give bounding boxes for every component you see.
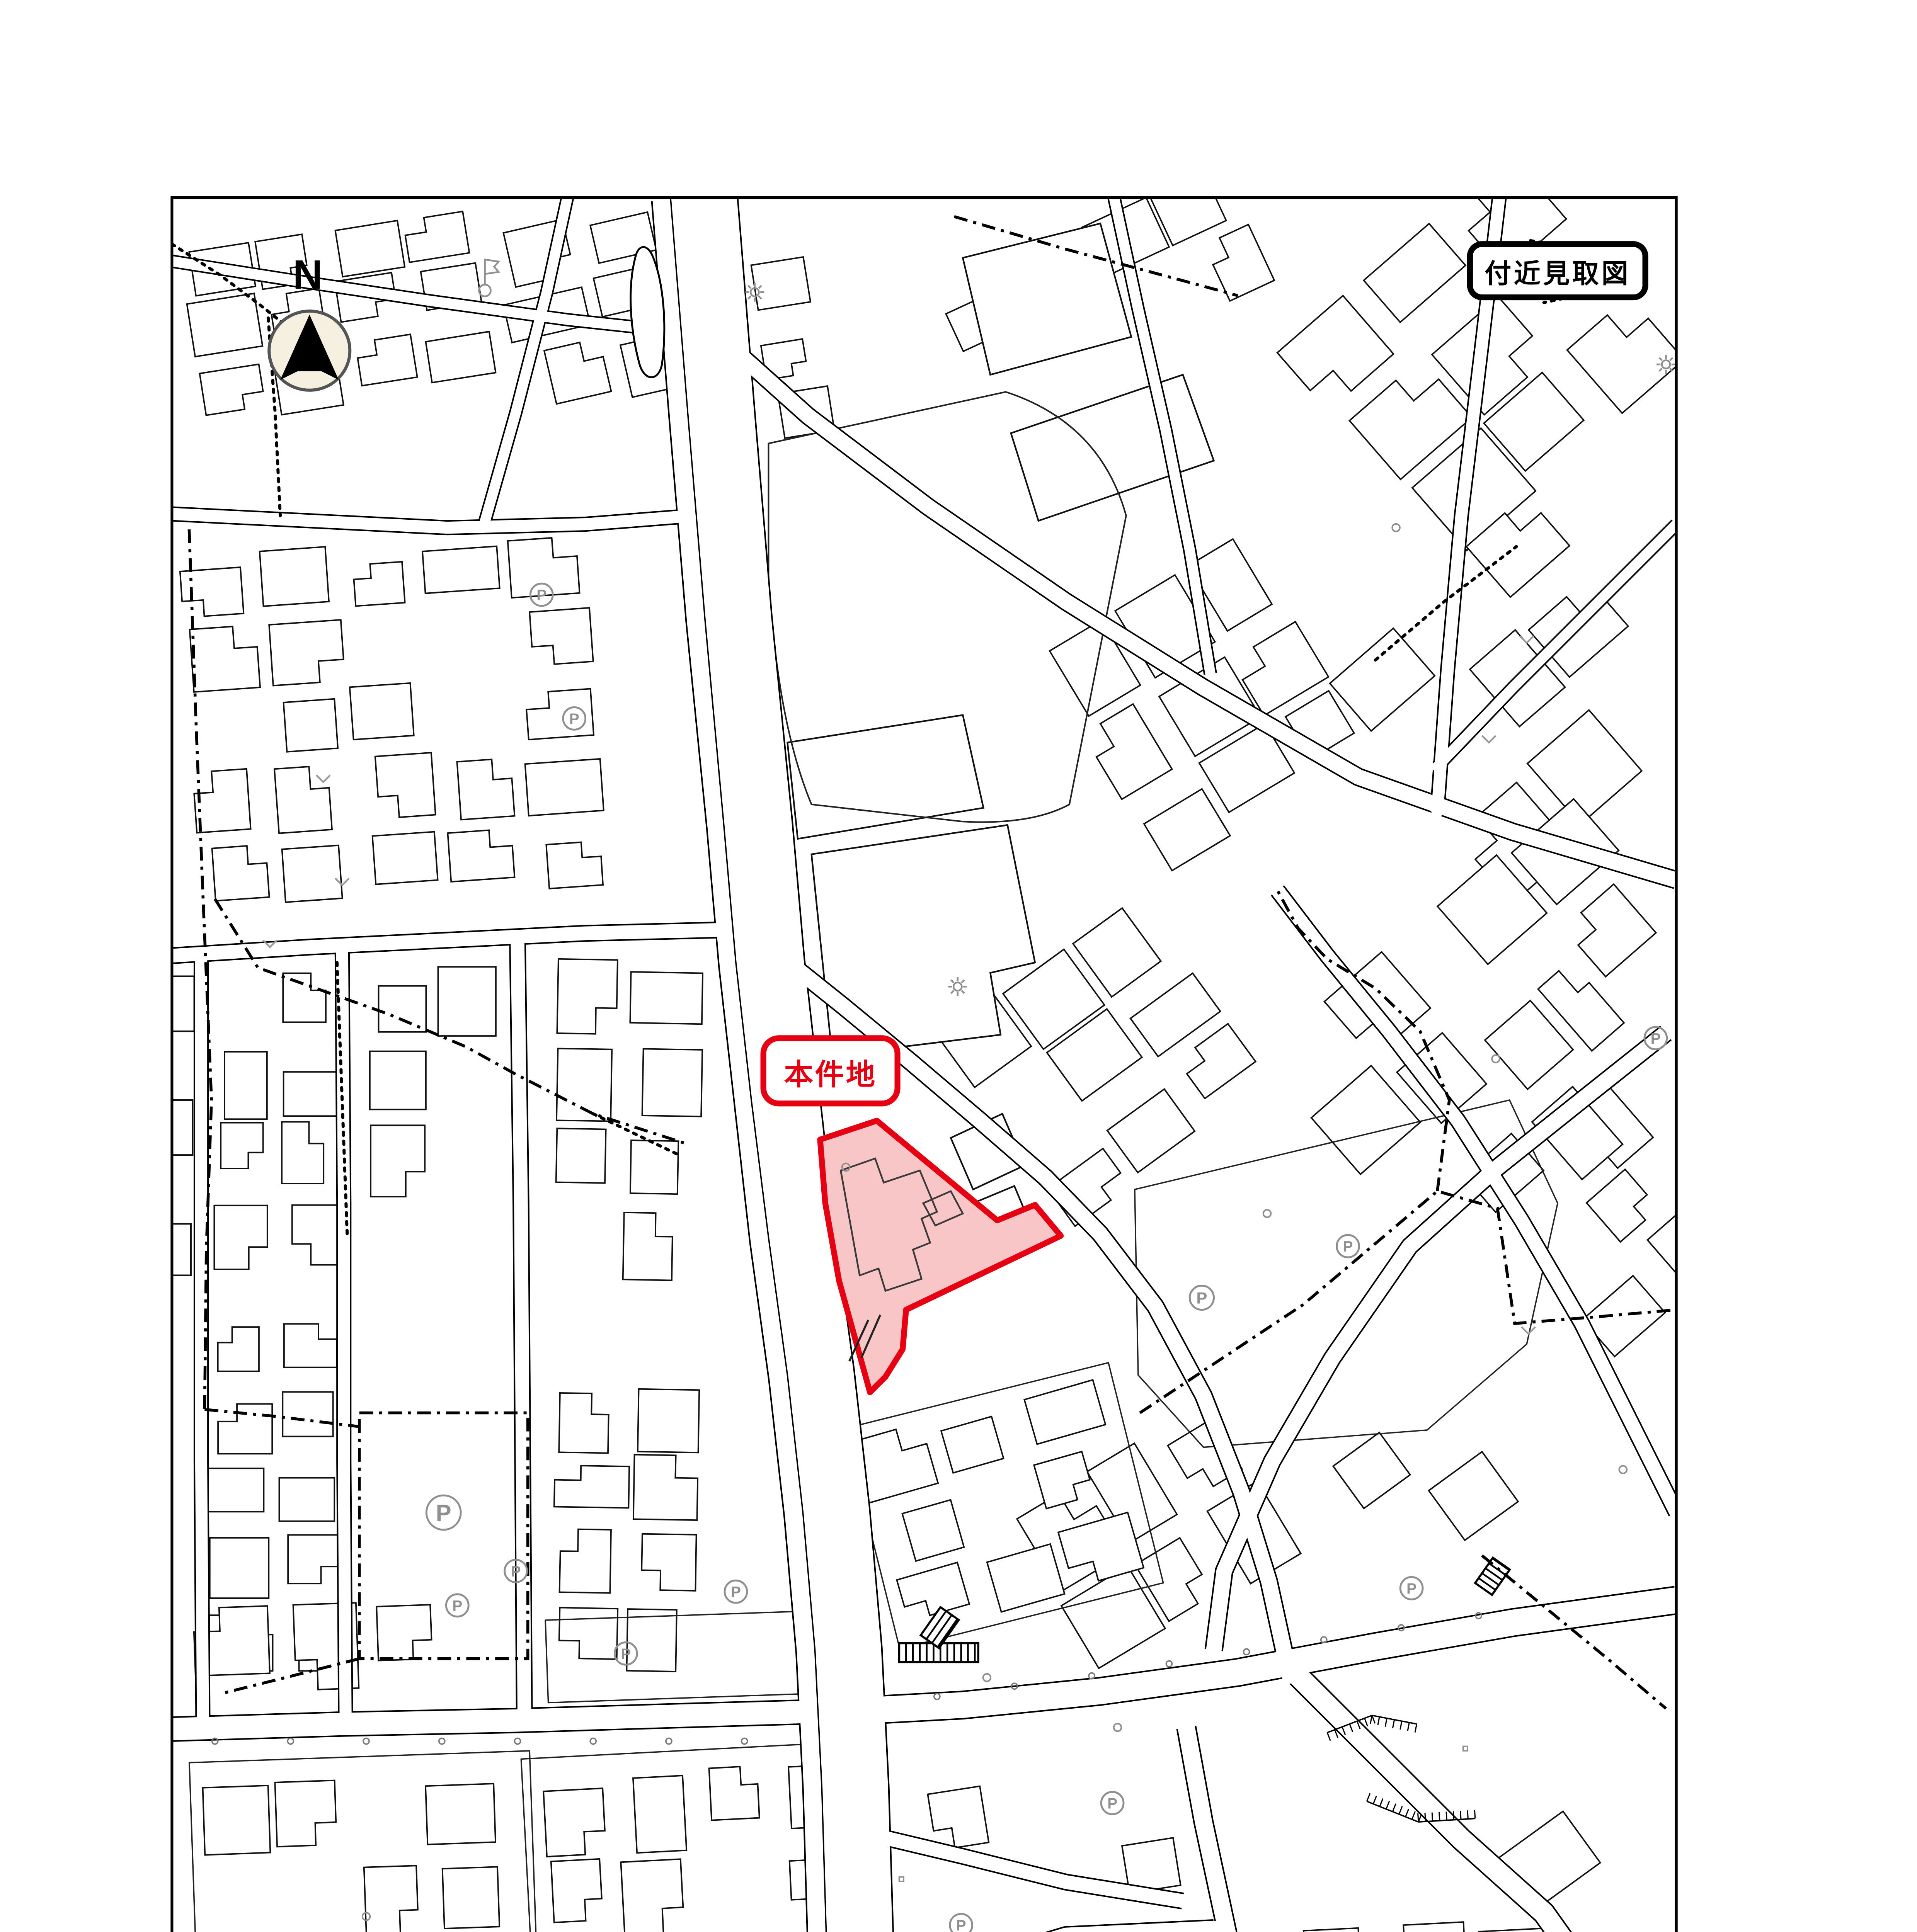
building-outline	[544, 342, 611, 404]
building-outline	[376, 1605, 431, 1661]
building-outline	[630, 972, 703, 1024]
building-outline	[206, 1468, 264, 1512]
building-outline	[203, 1786, 271, 1855]
parking-symbol: P	[446, 1594, 468, 1617]
building-outline	[282, 845, 342, 902]
building-outline	[274, 767, 332, 833]
building-outline	[630, 1140, 679, 1194]
site-label-box: 本件地	[763, 1038, 897, 1104]
building-outline	[557, 959, 618, 1034]
building-outline	[1578, 884, 1656, 976]
building-outline	[963, 223, 1131, 374]
building-outline	[200, 364, 263, 415]
building-outline	[335, 221, 405, 277]
building-outline	[225, 1052, 267, 1119]
vicinity-map: PPPPPPPPPPPPPPPPP N 付近見取図 本件地 縮尺 １：１５００ …	[0, 0, 1917, 1932]
building-outline	[221, 1123, 263, 1168]
building-outline	[187, 293, 263, 357]
building-outline	[279, 1478, 334, 1521]
slope-hachure	[1412, 1811, 1415, 1820]
road-edge-dot	[1166, 1661, 1172, 1667]
building-outline	[1330, 628, 1435, 731]
slope-hachure	[1474, 1810, 1475, 1818]
building-outline	[941, 1417, 1003, 1473]
small-square-mark	[1463, 1746, 1468, 1751]
slope-hachure	[1425, 1813, 1425, 1821]
small-square-mark	[899, 1877, 904, 1882]
check-mark-symbol	[1522, 1327, 1536, 1334]
building-outline	[638, 1389, 699, 1453]
slope-hachure	[1365, 1718, 1368, 1726]
boundary-dashdot	[1140, 1191, 1676, 1413]
building-outline	[529, 608, 593, 664]
building-outline	[370, 1051, 426, 1110]
slope-hachure	[1406, 1809, 1409, 1817]
svg-text:P: P	[569, 711, 579, 727]
svg-text:P: P	[436, 1500, 451, 1526]
svg-text:P: P	[1343, 1238, 1353, 1255]
building-outline	[190, 626, 260, 692]
small-circle-mark	[1114, 1724, 1122, 1731]
building-outline	[1403, 1922, 1466, 1932]
building-outline	[371, 1125, 425, 1197]
building-outline	[405, 211, 470, 262]
slope-hachure	[1378, 1717, 1379, 1725]
building-outline	[902, 1500, 964, 1561]
building-outline	[438, 967, 495, 1036]
svg-text:P: P	[1107, 1795, 1117, 1812]
building-outline	[1311, 1066, 1420, 1174]
building-outline	[543, 1788, 605, 1857]
slope-hachure	[1453, 1811, 1454, 1820]
building-outline	[379, 986, 426, 1032]
north-label: N	[293, 251, 323, 298]
road-surface	[201, 956, 203, 1719]
building-outline	[560, 1529, 611, 1593]
building-outline	[282, 1122, 323, 1184]
road-edge-dot	[363, 1738, 369, 1744]
slope-hachure	[1399, 1806, 1402, 1815]
building-outline	[1647, 1210, 1725, 1289]
building-outline	[422, 546, 500, 594]
building-outline	[194, 769, 250, 833]
road-edge-dot	[742, 1738, 747, 1744]
svg-text:P: P	[956, 1917, 966, 1932]
svg-text:P: P	[511, 1563, 521, 1580]
building-outline	[172, 1224, 191, 1275]
slope-hachure	[1327, 1733, 1330, 1741]
slope-hachure	[1393, 1804, 1396, 1812]
building-outline	[350, 683, 414, 740]
building-outline	[364, 1866, 418, 1932]
building-outline	[358, 334, 417, 386]
road-edge-dot	[1244, 1649, 1250, 1655]
map-title: 付近見取図	[1485, 259, 1631, 289]
svg-text:P: P	[621, 1646, 631, 1662]
building-outline	[559, 1608, 618, 1659]
building-outline	[642, 1534, 696, 1591]
parking-symbol: P	[1190, 1286, 1214, 1310]
check-mark-symbol	[1482, 736, 1496, 743]
slope-hachure	[1408, 1723, 1409, 1731]
small-circle-mark	[1392, 524, 1400, 532]
building-outline	[269, 620, 344, 685]
road-surface	[1298, 1676, 1677, 1932]
building-outline	[987, 1544, 1065, 1612]
building-outline	[1107, 1089, 1195, 1172]
building-outline	[633, 1455, 698, 1520]
building-outline	[1429, 1452, 1518, 1540]
building-outline	[283, 1392, 333, 1436]
building-outline	[288, 1535, 339, 1583]
building-outline	[284, 1324, 337, 1367]
small-circle-mark	[1492, 1055, 1500, 1063]
building-outline	[1024, 1380, 1105, 1444]
svg-text:P: P	[1651, 1031, 1661, 1047]
flag-landmark-icon	[479, 260, 499, 296]
road-edge-dot	[666, 1738, 672, 1744]
svg-text:P: P	[1406, 1580, 1416, 1597]
building-outline	[283, 973, 326, 1022]
building-outline	[525, 759, 604, 816]
building-outline	[1333, 1432, 1410, 1509]
building-outline	[1144, 789, 1230, 871]
building-outline	[1527, 710, 1642, 825]
building-outline	[260, 547, 329, 606]
map-drawing: PPPPPPPPPPPPPPPPP	[170, 155, 1725, 1932]
building-outline	[1213, 224, 1274, 301]
svg-text:P: P	[1196, 1289, 1207, 1307]
small-circle-mark	[1263, 1210, 1271, 1218]
road-surface	[342, 947, 346, 1719]
slope-hachure	[1386, 1801, 1389, 1809]
building-outline	[218, 1327, 259, 1371]
building-outline	[623, 1213, 672, 1281]
building-outline	[709, 1767, 759, 1820]
slope-hachure	[1432, 1813, 1432, 1821]
road-surface	[518, 940, 524, 1719]
building-outline	[1187, 1024, 1256, 1099]
building-outline	[546, 842, 603, 889]
building-outline	[284, 699, 338, 752]
building-outline	[448, 830, 514, 882]
slope-hachure	[1461, 1811, 1461, 1819]
slope-hachure	[1446, 1812, 1447, 1820]
parking-symbol: P	[426, 1495, 461, 1530]
slope-hachure	[1415, 1724, 1416, 1733]
building-outline	[172, 1100, 192, 1155]
parking-symbol: P	[1101, 1792, 1124, 1814]
road-surface	[1437, 524, 1676, 767]
building-outline	[551, 1859, 602, 1923]
building-outline	[642, 1049, 703, 1116]
svg-text:P: P	[536, 587, 546, 604]
check-mark-symbol	[317, 775, 330, 782]
building-outline	[1364, 224, 1465, 322]
small-circle-mark	[983, 1674, 991, 1682]
building-outline	[751, 257, 810, 310]
slope-hachure	[1400, 1721, 1402, 1730]
building-outline	[426, 1784, 495, 1844]
building-outline	[212, 846, 269, 901]
svg-text:P: P	[731, 1584, 741, 1600]
road-edge-dot	[590, 1738, 596, 1744]
building-outline	[556, 1128, 606, 1183]
road-edge-dot	[439, 1738, 445, 1744]
road-surface	[1186, 1728, 1279, 1932]
building-outline	[1096, 704, 1172, 799]
parking-symbol: P	[950, 1914, 972, 1932]
svg-text:P: P	[452, 1598, 462, 1614]
slope-hachure	[1393, 1720, 1394, 1728]
building-outline	[214, 1206, 267, 1269]
buildings-layer	[170, 155, 1725, 1932]
parking-symbol: P	[1400, 1577, 1423, 1599]
building-outline	[1277, 296, 1394, 391]
parking-symbol: P	[725, 1580, 747, 1603]
parking-symbol: P	[1337, 1235, 1359, 1257]
map-title-box: 付近見取図	[1470, 244, 1645, 298]
building-outline	[275, 1781, 336, 1847]
slope-hachure	[1373, 1796, 1376, 1804]
road-edge-dot	[514, 1738, 520, 1744]
site-label: 本件地	[784, 1059, 877, 1091]
slope-hachure	[1439, 1812, 1440, 1821]
building-outline	[1587, 1169, 1647, 1242]
vicinity-map-page: PPPPPPPPPPPPPPPPP N 付近見取図 本件地 縮尺 １：１５００ …	[0, 0, 1917, 1932]
building-outline	[928, 1786, 989, 1848]
slope-hachure	[1380, 1799, 1383, 1807]
building-outline	[180, 567, 244, 616]
building-outline	[443, 1867, 500, 1929]
slope-hachure	[1385, 1718, 1387, 1727]
small-circle-mark	[1619, 1466, 1627, 1474]
building-outline	[621, 1859, 683, 1932]
building-outline	[457, 759, 514, 820]
slope-hachure	[1418, 1813, 1418, 1822]
road-surface	[633, 1929, 1214, 1932]
building-outline	[633, 1776, 686, 1853]
building-outline	[172, 976, 194, 1031]
building-outline	[210, 1538, 269, 1598]
building-outline	[1304, 1928, 1361, 1932]
building-outline	[426, 332, 495, 383]
building-outline	[554, 1466, 629, 1508]
slope-hachure	[1367, 1793, 1370, 1801]
building-outline	[1034, 1452, 1090, 1509]
building-outline	[897, 1563, 969, 1616]
building-outline	[1567, 315, 1684, 413]
road-casing	[1298, 1676, 1677, 1932]
building-outline	[559, 1393, 609, 1453]
building-outline	[1479, 1929, 1545, 1932]
slope-hachure	[1468, 1810, 1468, 1819]
building-outline	[354, 562, 405, 606]
building-outline	[375, 753, 436, 817]
building-outline	[373, 832, 438, 884]
road-edge-dot	[288, 1738, 293, 1744]
